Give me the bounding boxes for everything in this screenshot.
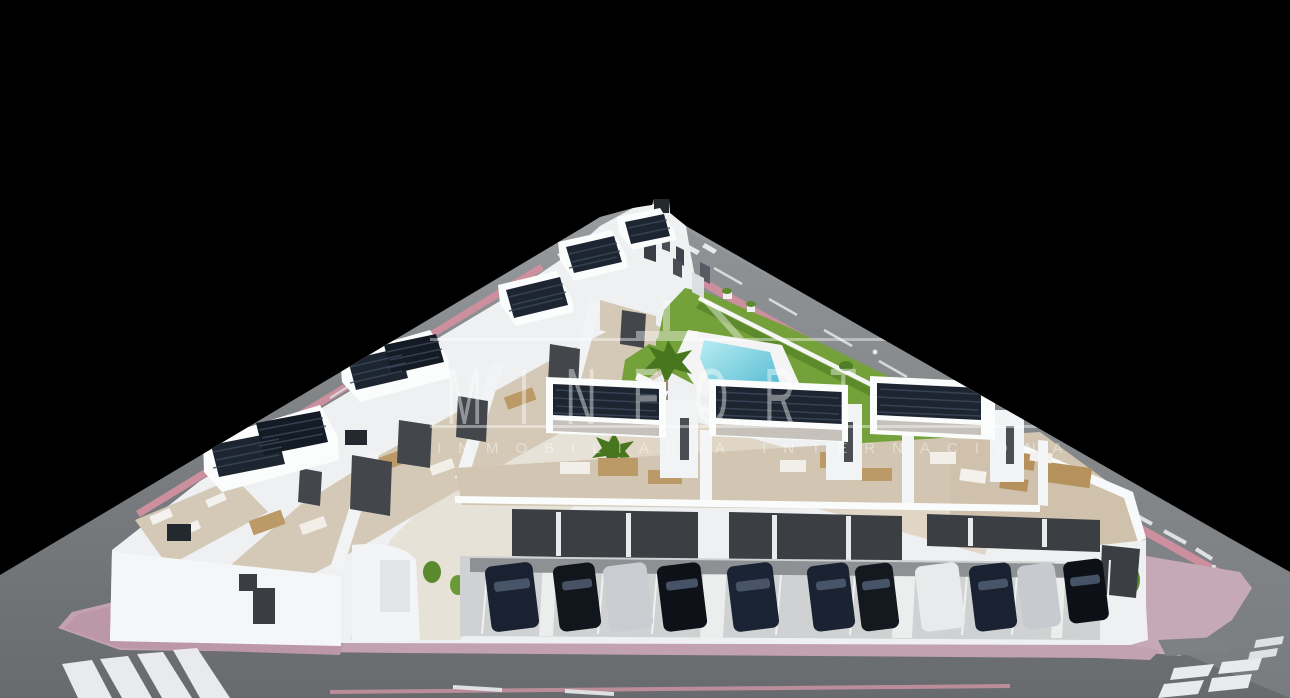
svg-text:INMOBILIARIA INTERNACIONAL: INMOBILIARIA INTERNACIONAL	[437, 440, 1105, 457]
svg-text:MINFORT: MINFORT	[446, 352, 892, 441]
